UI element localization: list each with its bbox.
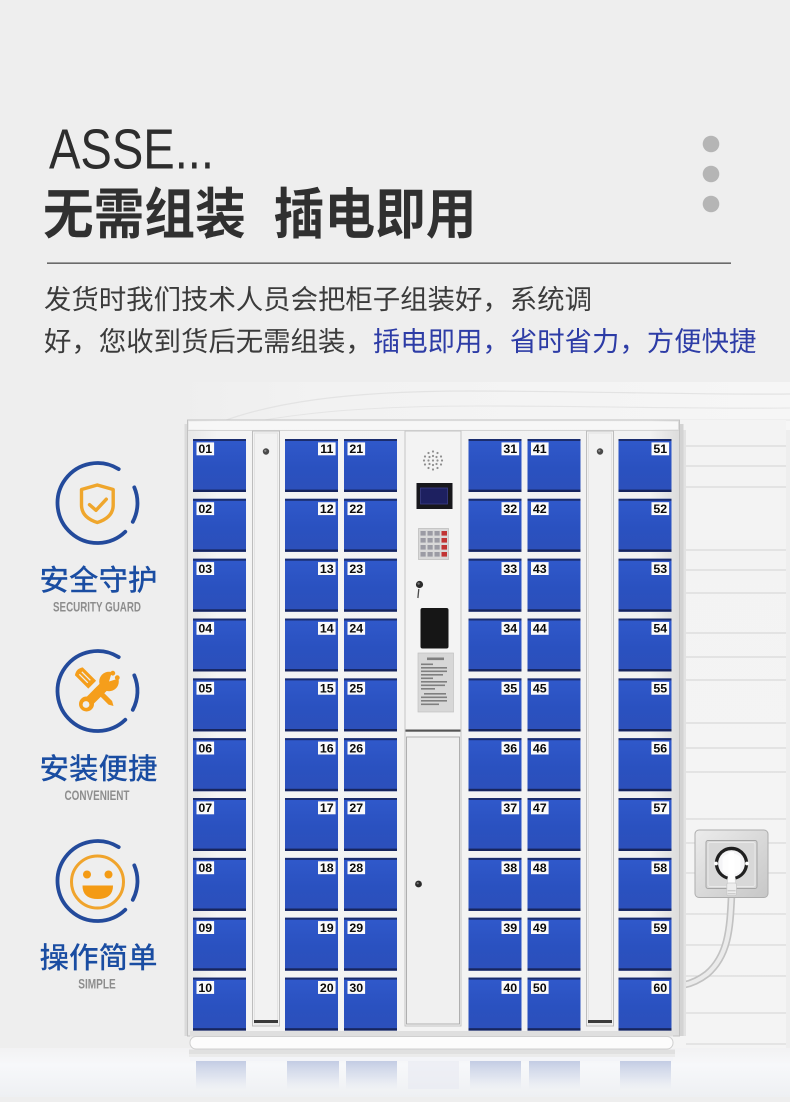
svg-text:30: 30: [349, 981, 363, 995]
svg-text:11: 11: [320, 442, 333, 456]
svg-text:29: 29: [349, 921, 363, 935]
svg-text:44: 44: [533, 622, 547, 636]
svg-text:43: 43: [533, 562, 547, 576]
svg-text:19: 19: [320, 921, 334, 935]
svg-text:51: 51: [653, 442, 667, 456]
svg-text:18: 18: [320, 861, 334, 875]
svg-text:54: 54: [653, 622, 667, 636]
svg-text:03: 03: [198, 562, 212, 576]
svg-text:09: 09: [198, 921, 212, 935]
svg-text:CONVENIENT: CONVENIENT: [65, 787, 130, 803]
svg-text:31: 31: [503, 442, 517, 456]
svg-text:55: 55: [653, 682, 667, 696]
svg-text:08: 08: [198, 861, 212, 875]
svg-text:26: 26: [349, 741, 363, 755]
svg-text:12: 12: [320, 502, 334, 516]
svg-text:25: 25: [349, 682, 363, 696]
svg-text:53: 53: [653, 562, 667, 576]
svg-text:21: 21: [349, 442, 363, 456]
svg-text:42: 42: [533, 502, 547, 516]
svg-text:38: 38: [503, 861, 517, 875]
svg-text:13: 13: [320, 562, 334, 576]
svg-text:06: 06: [198, 741, 212, 755]
svg-text:36: 36: [503, 741, 517, 755]
svg-text:47: 47: [533, 801, 547, 815]
svg-text:22: 22: [349, 502, 363, 516]
svg-text:SECURITY GUARD: SECURITY GUARD: [53, 599, 141, 615]
svg-text:50: 50: [533, 981, 547, 995]
svg-text:24: 24: [349, 622, 363, 636]
svg-text:28: 28: [349, 861, 363, 875]
svg-text:SIMPLE: SIMPLE: [78, 976, 116, 992]
svg-text:02: 02: [198, 502, 212, 516]
svg-text:59: 59: [653, 921, 667, 935]
svg-text:35: 35: [503, 682, 517, 696]
svg-text:ASSE...: ASSE...: [49, 118, 214, 182]
svg-text:39: 39: [503, 921, 517, 935]
svg-text:56: 56: [653, 741, 667, 755]
svg-text:34: 34: [503, 622, 517, 636]
svg-text:01: 01: [198, 442, 212, 456]
svg-text:46: 46: [533, 741, 547, 755]
svg-text:33: 33: [503, 562, 517, 576]
svg-text:32: 32: [503, 502, 517, 516]
svg-text:17: 17: [320, 801, 334, 815]
svg-text:45: 45: [533, 682, 547, 696]
svg-text:40: 40: [503, 981, 517, 995]
svg-text:60: 60: [653, 981, 667, 995]
svg-text:10: 10: [198, 981, 212, 995]
svg-text:15: 15: [320, 682, 334, 696]
svg-text:58: 58: [653, 861, 667, 875]
svg-text:27: 27: [349, 801, 363, 815]
svg-text:52: 52: [653, 502, 667, 516]
svg-text:49: 49: [533, 921, 547, 935]
svg-text:16: 16: [320, 741, 334, 755]
svg-text:20: 20: [320, 981, 334, 995]
svg-text:37: 37: [503, 801, 517, 815]
svg-text:48: 48: [533, 861, 547, 875]
svg-text:23: 23: [349, 562, 363, 576]
svg-text:57: 57: [653, 801, 667, 815]
svg-text:41: 41: [533, 442, 547, 456]
svg-text:07: 07: [198, 801, 212, 815]
svg-text:04: 04: [198, 622, 212, 636]
svg-text:14: 14: [320, 622, 334, 636]
svg-text:05: 05: [198, 682, 212, 696]
